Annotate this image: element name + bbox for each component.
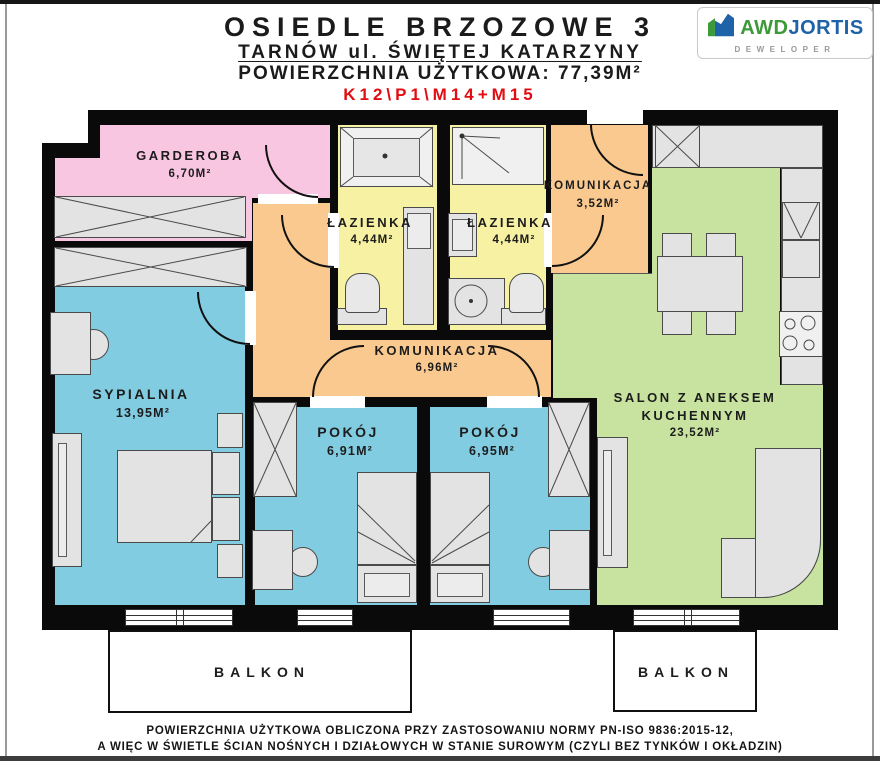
label-komunikacja-top-area: 3,52M² bbox=[577, 198, 620, 210]
label-komunikacja-mid-area: 6,96M² bbox=[416, 362, 459, 374]
dining-chair bbox=[706, 233, 736, 257]
dining-chair bbox=[662, 311, 692, 335]
wardrobe-crossed bbox=[548, 402, 590, 497]
window bbox=[633, 609, 740, 626]
bed-pillow bbox=[212, 497, 240, 541]
developer-brand-name: AWDJORTIS bbox=[740, 18, 863, 38]
stove bbox=[779, 311, 823, 357]
wardrobe-crossed bbox=[253, 402, 297, 497]
desk bbox=[50, 312, 91, 375]
label-sypialnia: SYPIALNIA bbox=[92, 386, 189, 402]
label-pokoj-left: POKÓJ bbox=[317, 424, 379, 440]
single-bed bbox=[430, 472, 490, 565]
usable-area-line: POWIERZCHNIA UŻYTKOWA: 77,39M² bbox=[0, 63, 880, 85]
wardrobe-crossed bbox=[54, 247, 247, 287]
brand-part-awd: AWD bbox=[740, 17, 788, 39]
label-pokoj-right-area: 6,95M² bbox=[469, 444, 515, 458]
developer-tagline: DEWELOPER bbox=[734, 45, 835, 54]
label-balkon-right: BALKON bbox=[638, 664, 734, 680]
dining-chair bbox=[706, 311, 736, 335]
label-garderoba-area: 6,70M² bbox=[169, 168, 212, 180]
tv-shelf-inner bbox=[603, 450, 612, 556]
developer-logo: AWDJORTIS DEWELOPER bbox=[697, 7, 873, 59]
label-lazienka-right: ŁAZIENKA bbox=[467, 215, 553, 230]
footer-disclaimer-line1: POWIERZCHNIA UŻYTKOWA OBLICZONA PRZY ZAS… bbox=[0, 725, 880, 737]
label-komunikacja-mid: KOMUNIKACJA bbox=[375, 343, 500, 358]
desk bbox=[549, 530, 590, 590]
frame-left-line bbox=[5, 4, 7, 756]
label-komunikacja-top: KOMUNIKACJA bbox=[544, 180, 652, 192]
single-bed bbox=[357, 472, 417, 565]
footer-disclaimer-line2: A WIĘC W ŚWIETLE ŚCIAN NOŚNYCH I DZIAŁOW… bbox=[0, 741, 880, 753]
desk bbox=[252, 530, 293, 590]
label-salon-area: 23,52M² bbox=[670, 427, 721, 439]
single-bed-box bbox=[437, 573, 483, 597]
bed-pillow bbox=[212, 452, 240, 495]
label-balkon-left: BALKON bbox=[214, 664, 310, 680]
unit-code: K12\P1\M14+M15 bbox=[0, 85, 880, 105]
room-salon bbox=[553, 273, 652, 398]
entrance-door-opening bbox=[587, 110, 643, 124]
door-opening-pokoj-left bbox=[310, 396, 365, 408]
label-lazienka-left: ŁAZIENKA bbox=[327, 215, 413, 230]
developer-logo-icon bbox=[706, 12, 736, 43]
dining-table bbox=[657, 256, 743, 312]
label-lazienka-left-area: 4,44M² bbox=[351, 234, 394, 246]
closet-crossed bbox=[54, 196, 246, 238]
door-opening-pokoj-right bbox=[487, 396, 542, 408]
toilet-bowl bbox=[509, 273, 544, 313]
label-pokoj-right: POKÓJ bbox=[459, 424, 521, 440]
window bbox=[297, 609, 353, 626]
shower bbox=[452, 127, 544, 185]
single-bed-box bbox=[364, 573, 410, 597]
double-bed bbox=[117, 450, 212, 543]
frame-top-line bbox=[0, 0, 880, 4]
label-sypialnia-area: 13,95M² bbox=[116, 406, 170, 420]
frame-right-line bbox=[872, 4, 874, 756]
bathtub-inner bbox=[353, 138, 420, 177]
toilet-bowl bbox=[345, 273, 380, 313]
wall-step-notch bbox=[42, 110, 88, 143]
floor-plan-page: OSIEDLE BRZOZOWE 3 TARNÓW ul. ŚWIĘTEJ KA… bbox=[0, 0, 880, 772]
washing-machine bbox=[448, 278, 505, 325]
fridge-unit bbox=[782, 202, 820, 240]
window bbox=[493, 609, 570, 626]
kitchen-cabinet bbox=[782, 240, 820, 278]
wardrobe-tall-inner bbox=[58, 443, 67, 557]
brand-part-jortis: JORTIS bbox=[788, 17, 863, 39]
label-lazienka-right-area: 4,44M² bbox=[493, 234, 536, 246]
nightstand bbox=[217, 413, 243, 448]
label-pokoj-left-area: 6,91M² bbox=[327, 444, 373, 458]
tv-shelf bbox=[597, 437, 628, 568]
dining-chair bbox=[662, 233, 692, 257]
wardrobe-tall bbox=[52, 433, 82, 567]
nightstand bbox=[217, 544, 243, 578]
label-salon-line1: SALON Z ANEKSEM bbox=[614, 390, 777, 405]
window bbox=[125, 609, 233, 626]
label-salon-line2: KUCHENNYM bbox=[642, 408, 749, 423]
kitchen-sink-unit bbox=[655, 125, 700, 168]
label-garderoba: GARDEROBA bbox=[136, 148, 244, 163]
frame-bottom-line bbox=[0, 756, 880, 761]
